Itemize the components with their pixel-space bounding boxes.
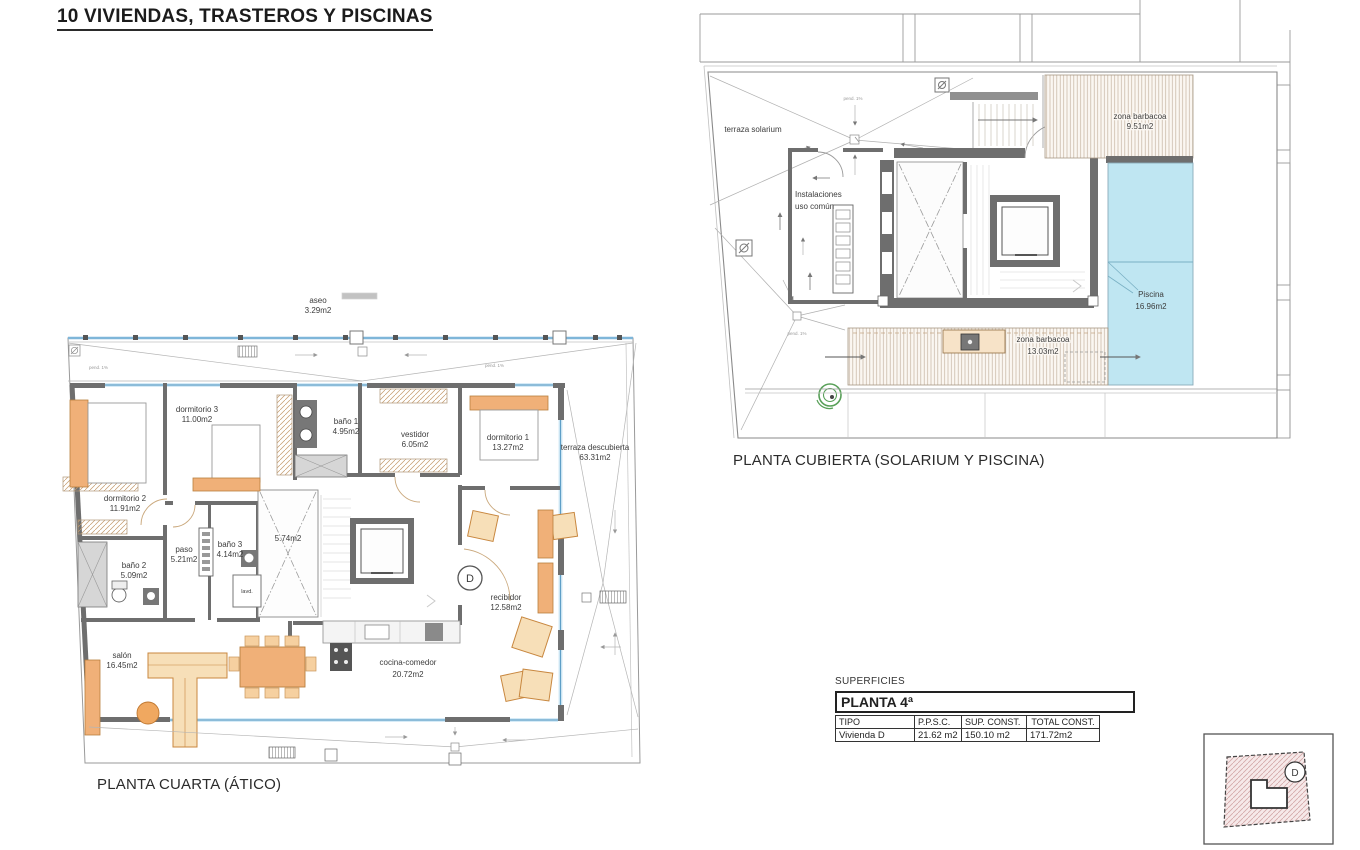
room-label-dormitorio3: dormitorio 3 <box>176 405 219 414</box>
room-label-vestidor: vestidor <box>401 430 429 439</box>
room-area-bano1: 4.95m2 <box>333 427 360 436</box>
unit-badge-letter: D <box>466 573 474 585</box>
room-area-vestidor: 6.05m2 <box>402 440 429 449</box>
room-area-dormitorio1: 13.27m2 <box>492 443 524 452</box>
room-label-lavd: lavd. <box>241 589 253 595</box>
room-area-dormitorio3: 11.00m2 <box>182 415 213 424</box>
cubierta-piscina <box>1108 163 1193 385</box>
room-label-bano3: baño 3 <box>218 540 243 549</box>
room-area-barbacoa-top: 9.51m2 <box>1127 122 1154 131</box>
room-area-terraza: 63.31m2 <box>579 453 611 462</box>
cell-total-const: 171.72m2 <box>1027 729 1100 742</box>
slope-label: pend. 1% <box>485 363 504 368</box>
room-label-dormitorio2: dormitorio 2 <box>104 494 147 503</box>
unit-badge-atico: D <box>458 566 482 590</box>
room-label-recibidor: recibidor <box>491 593 522 602</box>
room-area-shaft: 5.74m2 <box>275 534 302 543</box>
room-label-terraza: terraza descubierta <box>561 443 630 452</box>
room-label-barbacoa-bottom: zona barbacoa <box>1017 335 1070 344</box>
cell-tipo: Vivienda D <box>836 729 915 742</box>
surfaces-floor-box: PLANTA 4ª <box>835 691 1135 713</box>
surfaces-title: SUPERFICIES <box>835 676 1135 687</box>
room-label-salon: salón <box>112 651 131 660</box>
room-label-barbacoa-top: zona barbacoa <box>1114 112 1167 121</box>
room-label-instalaciones2: uso común <box>795 202 834 211</box>
surfaces-data-row: Vivienda D 21.62 m2 150.10 m2 171.72m2 <box>836 729 1100 742</box>
room-area-bano3: 4.14m2 <box>217 550 244 559</box>
drawing-sheet: 10 VIVIENDAS, TRASTEROS Y PISCINAS <box>0 0 1360 850</box>
slope-label: pend. 1% <box>89 365 108 370</box>
col-sup-const: SUP. CONST. <box>962 716 1027 729</box>
cell-sup-const: 150.10 m2 <box>962 729 1027 742</box>
room-area-dormitorio2: 11.91m2 <box>110 504 141 513</box>
plan-atico-caption: PLANTA CUARTA (ÁTICO) <box>97 776 281 793</box>
surfaces-block: SUPERFICIES PLANTA 4ª TIPO P.P.S.C. SUP.… <box>835 676 1135 742</box>
col-tipo: TIPO <box>836 716 915 729</box>
room-label-paso: paso <box>175 545 193 554</box>
surfaces-table: TIPO P.P.S.C. SUP. CONST. TOTAL CONST. V… <box>835 715 1100 742</box>
key-plan-badge-letter: D <box>1291 768 1298 779</box>
surfaces-header-row: TIPO P.P.S.C. SUP. CONST. TOTAL CONST. <box>836 716 1100 729</box>
room-label-dormitorio1: dormitorio 1 <box>487 433 530 442</box>
slope-label: pend. 1% <box>787 331 806 336</box>
room-area-aseo: 3.29m2 <box>305 306 332 315</box>
plan-cubierta-canvas: pend. 1% pend. 1% <box>685 0 1310 485</box>
col-ppsc: P.P.S.C. <box>915 716 962 729</box>
col-total-const: TOTAL CONST. <box>1027 716 1100 729</box>
key-plan: D <box>1203 733 1335 846</box>
room-area-piscina: 16.96m2 <box>1135 302 1167 311</box>
room-area-cocina: 20.72m2 <box>392 670 424 679</box>
slope-label: pend. 1% <box>843 96 862 101</box>
cell-ppsc: 21.62 m2 <box>915 729 962 742</box>
room-area-barbacoa-bottom: 13.03m2 <box>1027 347 1059 356</box>
room-label-bano1: baño 1 <box>334 417 359 426</box>
room-label-instalaciones: Instalaciones <box>795 190 842 199</box>
room-area-bano2: 5.09m2 <box>121 571 148 580</box>
room-area-recibidor: 12.58m2 <box>490 603 522 612</box>
room-label-terraza-solarium: terraza solarium <box>724 125 782 134</box>
room-label-cocina: cocina-comedor <box>380 658 437 667</box>
room-label-piscina: Piscina <box>1138 290 1164 299</box>
room-area-paso: 5.21m2 <box>171 555 198 564</box>
sheet-title: 10 VIVIENDAS, TRASTEROS Y PISCINAS <box>57 6 433 31</box>
plan-atico-canvas: pend. 1% pend. 1% <box>55 285 685 810</box>
room-area-salon: 16.45m2 <box>106 661 138 670</box>
plan-cubierta-caption: PLANTA CUBIERTA (SOLARIUM Y PISCINA) <box>733 452 1045 469</box>
room-label-bano2: baño 2 <box>122 561 147 570</box>
room-label-aseo: aseo <box>309 296 327 305</box>
